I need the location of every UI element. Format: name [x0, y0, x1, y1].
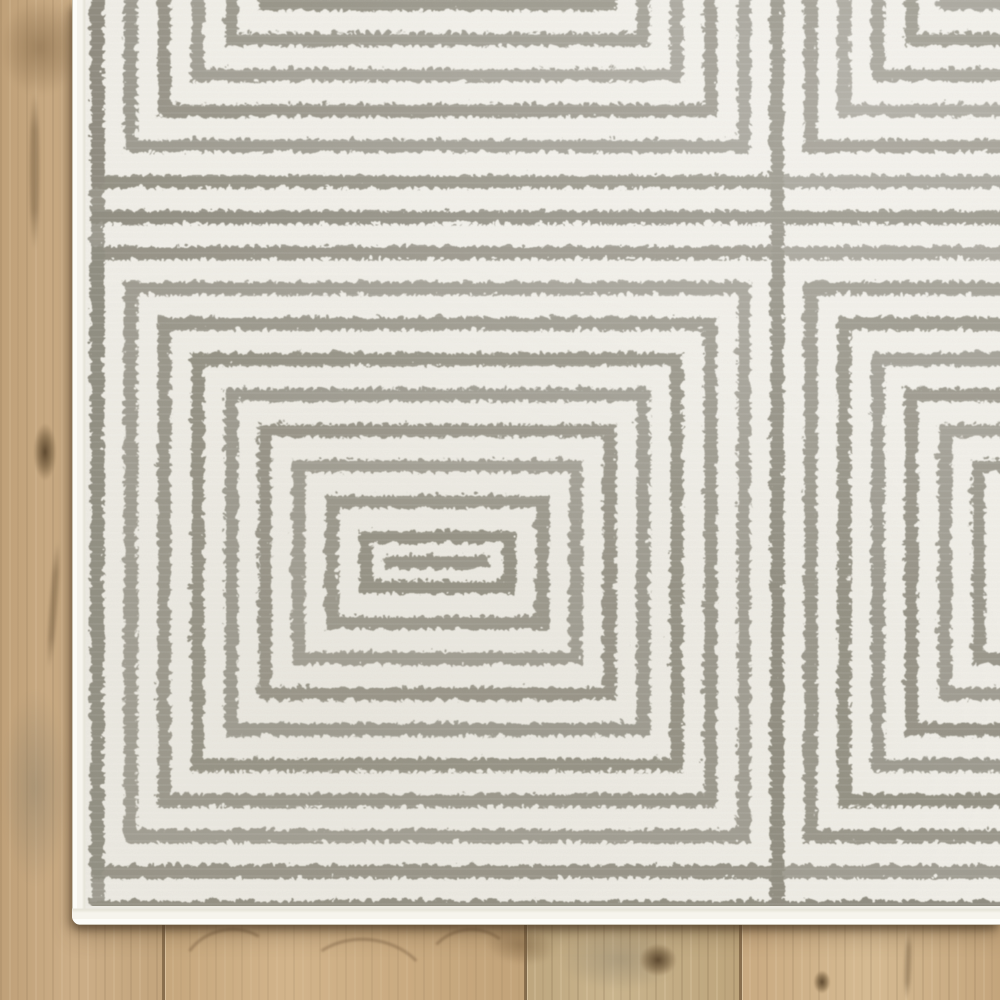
rug-binding-bottom-edge — [72, 906, 1000, 925]
rug-binding-left-edge — [72, 0, 86, 925]
scene — [0, 0, 1000, 1000]
rug-pattern — [72, 0, 1000, 906]
rug — [72, 0, 1000, 925]
